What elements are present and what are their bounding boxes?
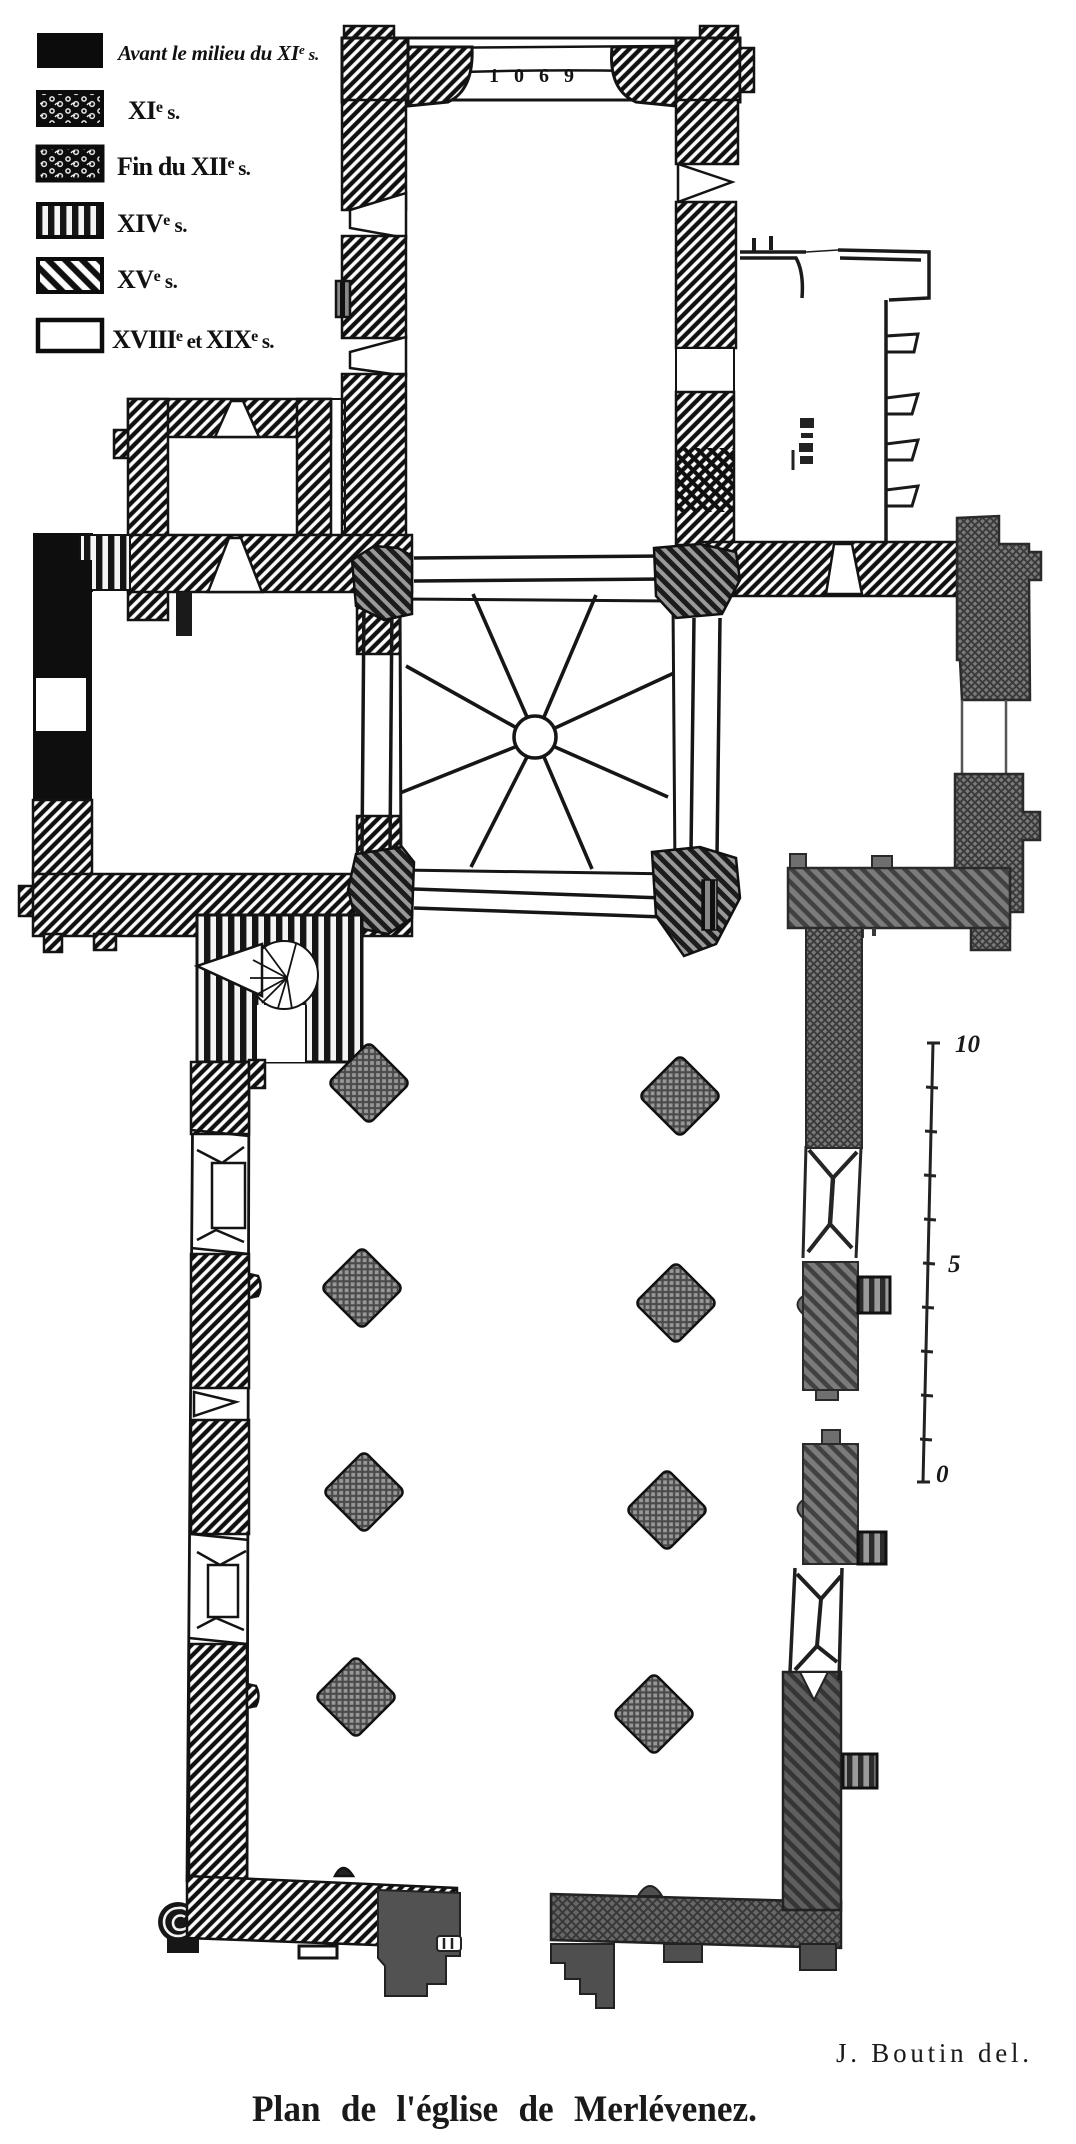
svg-text:XIVe s.: XIVe s. [117,209,187,238]
svg-text:5: 5 [948,1251,961,1278]
svg-text:XVe s.: XVe s. [117,265,178,294]
svg-text:10: 10 [955,1031,981,1058]
svg-text:0: 0 [936,1461,949,1488]
svg-text:1069: 1069 [489,65,589,87]
svg-text:XIe s.: XIe s. [128,96,180,125]
svg-text:Plan de l'église de Merlévenez: Plan de l'église de Merlévenez. [252,2089,757,2130]
svg-text:XVIIIe et XIXe s.: XVIIIe et XIXe s. [112,325,274,354]
svg-text:J. Boutin del.: J. Boutin del. [836,2038,1032,2068]
svg-text:Avant le milieu du XIe s.: Avant le milieu du XIe s. [116,41,319,65]
